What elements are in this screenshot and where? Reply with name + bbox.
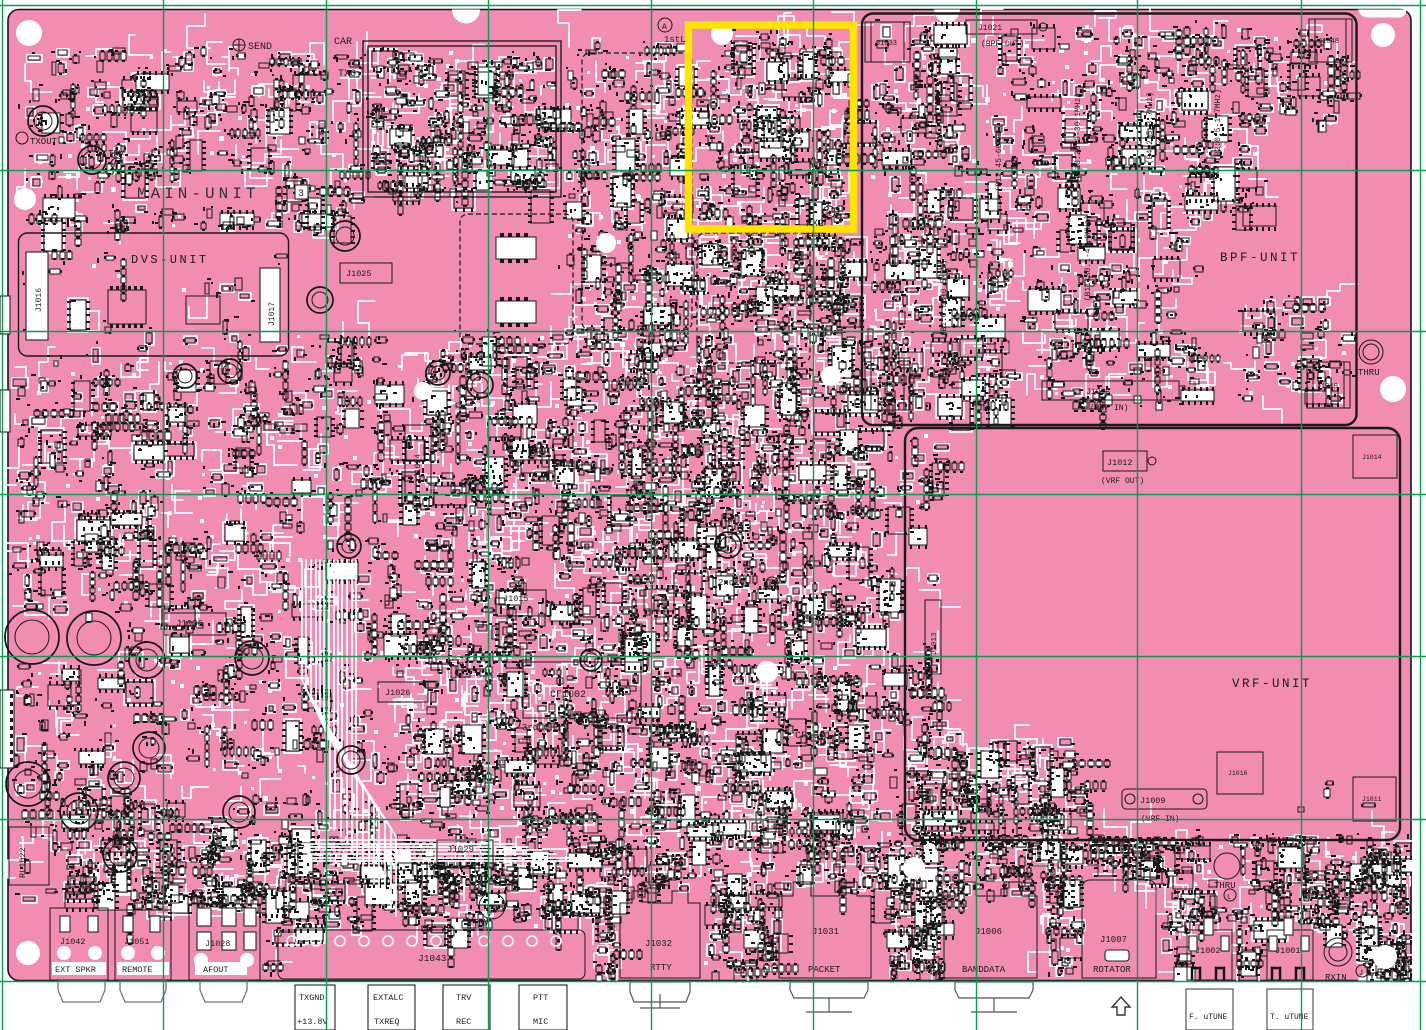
svg-text:F. uTUNE: F. uTUNE <box>1189 1013 1228 1022</box>
svg-text:M: M <box>114 162 118 170</box>
svg-text:(B1:0.03-0.5MHz): (B1:0.03-0.5MHz) <box>940 260 949 337</box>
svg-text:J1029: J1029 <box>447 845 474 855</box>
svg-text:3: 3 <box>298 189 304 200</box>
svg-text:J1019: J1019 <box>1317 383 1338 391</box>
svg-text:M: M <box>477 888 481 896</box>
svg-text:CF1002: CF1002 <box>550 690 586 701</box>
svg-text:J1013: J1013 <box>931 632 939 655</box>
svg-text:T. uTUNE: T. uTUNE <box>1270 1013 1309 1022</box>
svg-text:(B10:20.9-30.1MHz): (B10:20.9-30.1MHz) <box>1074 93 1083 179</box>
svg-text:J1026: J1026 <box>385 688 411 698</box>
svg-text:J1032: J1032 <box>645 939 672 949</box>
svg-text:J1024: J1024 <box>414 454 423 478</box>
svg-text:J1014: J1014 <box>1362 454 1382 461</box>
svg-text:TXG: TXG <box>338 69 356 80</box>
svg-text:J1031: J1031 <box>812 927 839 937</box>
svg-text:J101B: J101B <box>1086 388 1110 397</box>
svg-text:AFOUT: AFOUT <box>203 965 229 975</box>
svg-text:1stL: 1stL <box>664 35 686 45</box>
svg-text:(B11:30.1-45.0MHz): (B11:30.1-45.0MHz) <box>1084 215 1093 301</box>
svg-text:J1011: J1011 <box>1362 796 1382 803</box>
svg-text:J1036: J1036 <box>176 619 203 629</box>
svg-text:J1016: J1016 <box>1228 770 1248 777</box>
svg-text:TXREQ: TXREQ <box>374 1017 400 1027</box>
svg-text:J1017: J1017 <box>268 302 277 326</box>
svg-text:J1015: J1015 <box>503 594 529 604</box>
svg-text:J1012: J1012 <box>1107 458 1133 468</box>
svg-text:EXT SPKR: EXT SPKR <box>55 965 96 975</box>
svg-text:J1001: J1001 <box>1275 946 1301 956</box>
svg-text:J1021: J1021 <box>978 24 1002 33</box>
svg-text:DVS-UNIT: DVS-UNIT <box>131 253 209 267</box>
svg-text:J1048: J1048 <box>1318 38 1339 46</box>
svg-text:REMOTE: REMOTE <box>122 965 153 975</box>
svg-text:(B2:0.5-1.7MHz): (B2:0.5-1.7MHz) <box>1214 89 1223 161</box>
svg-text:+13.8V: +13.8V <box>297 1017 329 1027</box>
svg-text:J1043: J1043 <box>418 953 447 964</box>
svg-text:TXGND: TXGND <box>299 993 325 1003</box>
svg-text:RL1022: RL1022 <box>18 847 28 878</box>
svg-text:L: L <box>1227 894 1231 902</box>
svg-text:J1007: J1007 <box>1100 935 1127 945</box>
svg-text:(BPF IN): (BPF IN) <box>1090 404 1128 413</box>
svg-text:J1025: J1025 <box>346 269 372 279</box>
svg-text:RX2: RX2 <box>806 219 824 230</box>
svg-text:J: J <box>1359 970 1363 978</box>
svg-text:J1002: J1002 <box>1195 946 1221 956</box>
svg-text:BPF-UNIT: BPF-UNIT <box>1220 251 1300 265</box>
svg-text:J1016: J1016 <box>35 288 44 312</box>
svg-text:TRV: TRV <box>473 918 490 928</box>
svg-text:J1042: J1042 <box>60 937 86 947</box>
svg-text:J1033: J1033 <box>876 40 897 48</box>
svg-text:SEND: SEND <box>248 42 272 53</box>
svg-text:(B12:45-60MHz): (B12:45-60MHz) <box>995 124 1004 191</box>
svg-text:J1057: J1057 <box>876 382 897 390</box>
svg-text:TXOUT: TXOUT <box>30 137 58 147</box>
svg-text:THRU: THRU <box>1358 368 1380 378</box>
svg-text:(B4:2.5-3.7MHz): (B4:2.5-3.7MHz) <box>1146 92 1155 164</box>
svg-text:3rdLO: 3rdLO <box>522 723 549 733</box>
svg-text:VRF-UNIT: VRF-UNIT <box>1232 677 1312 691</box>
svg-text:CAR: CAR <box>334 37 352 48</box>
svg-text:BANDDATA: BANDDATA <box>962 965 1006 975</box>
svg-text:MAIN-UNIT: MAIN-UNIT <box>137 185 259 203</box>
svg-text:TRV: TRV <box>456 993 472 1003</box>
svg-text:J1028: J1028 <box>205 939 231 949</box>
svg-text:PTT: PTT <box>533 993 548 1003</box>
svg-text:J1009: J1009 <box>1140 796 1166 806</box>
svg-text:K: K <box>826 210 831 219</box>
svg-text:RTTY: RTTY <box>650 963 672 973</box>
svg-text:J1051: J1051 <box>124 937 150 947</box>
svg-text:REC: REC <box>456 1017 471 1027</box>
svg-text:A: A <box>662 23 667 32</box>
svg-text:EXTALC: EXTALC <box>373 993 404 1003</box>
svg-text:(BPF OUT): (BPF OUT) <box>981 40 1024 49</box>
svg-text:2ndLO: 2ndLO <box>718 578 745 588</box>
svg-text:ROTATOR: ROTATOR <box>1093 965 1131 975</box>
svg-text:J1006: J1006 <box>975 927 1002 937</box>
svg-text:TRV: TRV <box>108 149 125 159</box>
svg-text:MIC: MIC <box>533 1017 548 1027</box>
